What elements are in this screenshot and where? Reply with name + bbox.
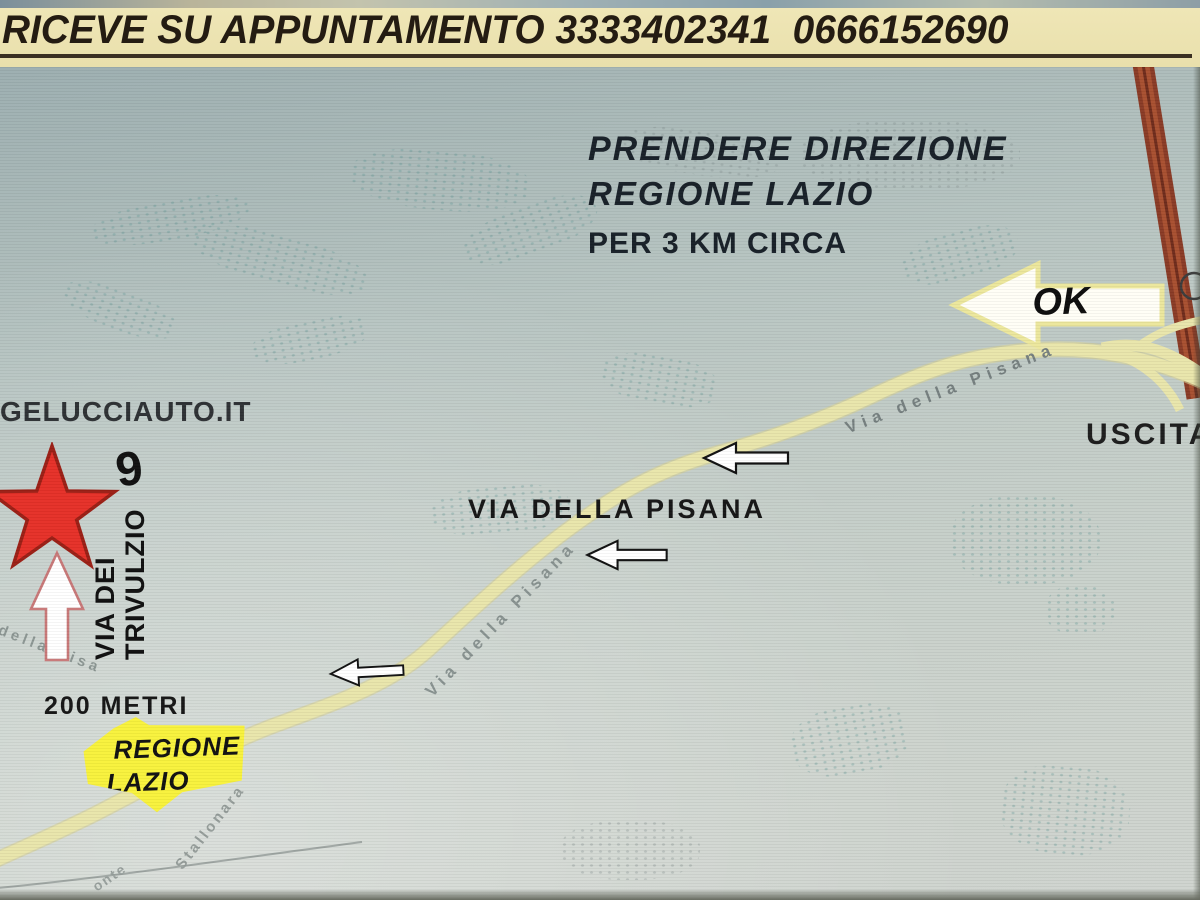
main-road-label: VIA DELLA PISANA <box>468 494 766 525</box>
up-arrow-icon <box>28 550 86 664</box>
photo-top-edge <box>0 0 1200 8</box>
route-arrow-1-icon <box>700 440 792 476</box>
direction-note-line1: PRENDERE DIREZIONE <box>588 130 1008 169</box>
route-arrow-3-icon <box>327 654 407 690</box>
direction-note-line3: PER 3 KM CIRCA <box>588 227 1008 261</box>
banner-underline <box>0 54 1192 58</box>
direction-note: PRENDERE DIREZIONE REGIONE LAZIO PER 3 K… <box>588 130 1008 261</box>
region-badge-line1: REGIONE <box>113 730 246 766</box>
distance-label: 200 METRI <box>44 692 188 721</box>
map-screenshot: Via della Pisana Via della Pisana della … <box>0 0 1200 900</box>
appointment-banner: RICEVE SU APPUNTAMENTO 3333402341 066615… <box>0 8 1200 67</box>
route-arrow-2-icon <box>584 538 670 572</box>
direction-note-line2: REGIONE LAZIO <box>588 175 1008 213</box>
website-label: GELUCCIAUTO.IT <box>0 396 251 428</box>
exit-label: USCITA <box>1086 418 1200 452</box>
appointment-banner-text: RICEVE SU APPUNTAMENTO 3333402341 066615… <box>2 8 1008 53</box>
screen-edge-bottom <box>0 890 1200 900</box>
screen-edge-right <box>1193 67 1200 900</box>
ok-label: OK <box>1005 279 1116 326</box>
